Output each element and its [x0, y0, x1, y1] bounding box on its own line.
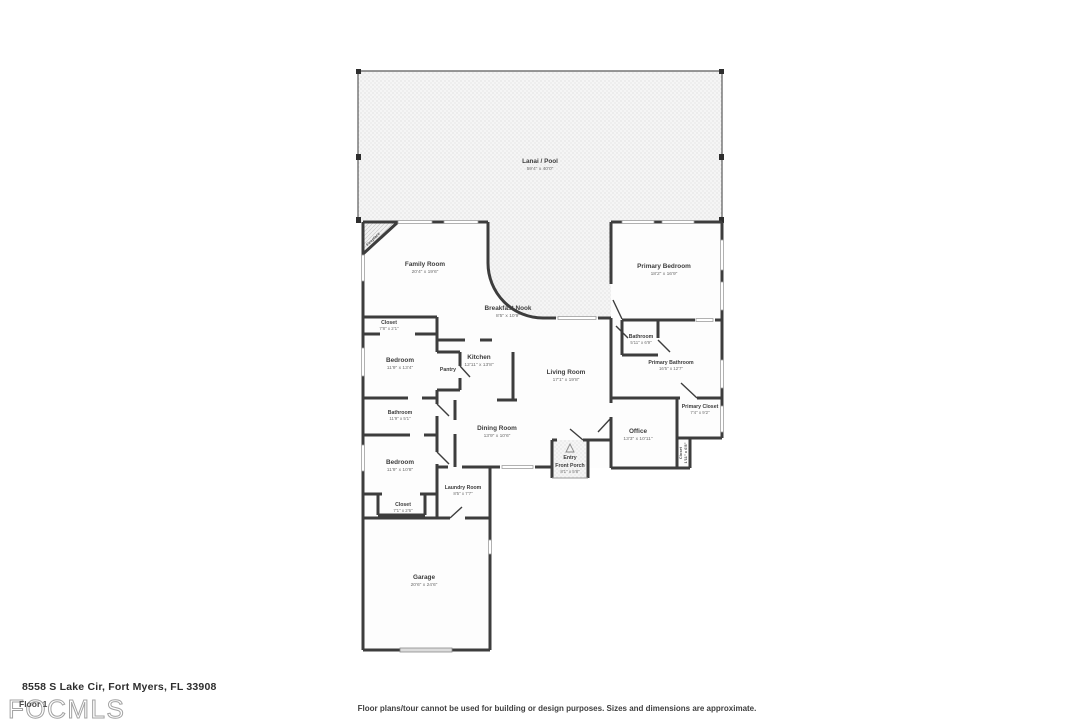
svg-text:5'11" x 6'9": 5'11" x 6'9": [630, 340, 652, 345]
svg-text:Kitchen: Kitchen: [467, 354, 491, 361]
svg-text:20'6" x 24'6": 20'6" x 24'6": [411, 582, 438, 588]
svg-text:17'1" x 19'8": 17'1" x 19'8": [553, 377, 580, 383]
svg-text:13'3" x 10'11": 13'3" x 10'11": [623, 436, 652, 442]
svg-text:18'2" x 16'9": 18'2" x 16'9": [651, 271, 678, 277]
svg-text:16'5" x 12'7": 16'5" x 12'7": [659, 366, 684, 371]
svg-text:7'8" x 2'1": 7'8" x 2'1": [379, 326, 399, 331]
svg-text:Primary Bedroom: Primary Bedroom: [637, 263, 691, 270]
svg-text:7'1" x 2'6": 7'1" x 2'6": [393, 508, 413, 513]
svg-text:Garage: Garage: [413, 574, 435, 581]
svg-text:11'9" x 5'1": 11'9" x 5'1": [389, 416, 411, 421]
svg-text:Pantry: Pantry: [440, 367, 456, 373]
svg-text:Office: Office: [629, 428, 648, 435]
svg-text:Living Room: Living Room: [547, 369, 586, 376]
svg-text:1'11" x 6'8": 1'11" x 6'8": [683, 442, 688, 463]
svg-text:Breakfast Nook: Breakfast Nook: [485, 305, 532, 312]
svg-text:8'5" x 7'7": 8'5" x 7'7": [453, 491, 473, 496]
svg-text:59'4" x 40'0": 59'4" x 40'0": [527, 166, 554, 172]
floor-plan: Fireplace: [0, 0, 1086, 724]
room-label-closet-bottom: Closet 7'1" x 2'6": [393, 502, 413, 513]
address: 8558 S Lake Cir, Fort Myers, FL 33908: [22, 681, 217, 693]
svg-text:8'1" x 5'8": 8'1" x 5'8": [560, 469, 580, 474]
room-label-bathroom-left: Bathroom 11'9" x 5'1": [388, 410, 413, 421]
svg-text:12'11" x 13'8": 12'11" x 13'8": [464, 362, 493, 368]
svg-text:Family Room: Family Room: [405, 261, 445, 268]
floor-label: Floor 1: [19, 699, 47, 709]
garage-door: [400, 648, 452, 652]
svg-text:20'4" x 19'6": 20'4" x 19'6": [412, 269, 439, 275]
disclaimer: Floor plans/tour cannot be used for buil…: [28, 704, 1086, 713]
svg-text:13'9" x 10'6": 13'9" x 10'6": [484, 433, 511, 439]
svg-text:11'9" x 10'8": 11'9" x 10'8": [387, 467, 414, 473]
room-label-closet-top: Closet 7'8" x 2'1": [379, 320, 399, 331]
room-label-entry: Entry: [563, 455, 576, 461]
svg-text:Bedroom: Bedroom: [386, 357, 414, 364]
room-label-pantry: Pantry: [440, 367, 456, 373]
room-label-bathroom-right: Bathroom 5'11" x 6'9": [629, 334, 654, 345]
svg-text:11'9" x 13'4": 11'9" x 13'4": [387, 365, 414, 371]
svg-text:Entry: Entry: [563, 455, 576, 461]
svg-text:7'4" x 9'2": 7'4" x 9'2": [690, 410, 710, 415]
svg-text:Lanai / Pool: Lanai / Pool: [522, 158, 558, 165]
svg-text:Dining Room: Dining Room: [477, 425, 517, 432]
floor-plan-page: Fireplace: [0, 0, 1086, 724]
svg-text:Bedroom: Bedroom: [386, 459, 414, 466]
svg-text:8'5" x 10'9": 8'5" x 10'9": [496, 313, 520, 319]
